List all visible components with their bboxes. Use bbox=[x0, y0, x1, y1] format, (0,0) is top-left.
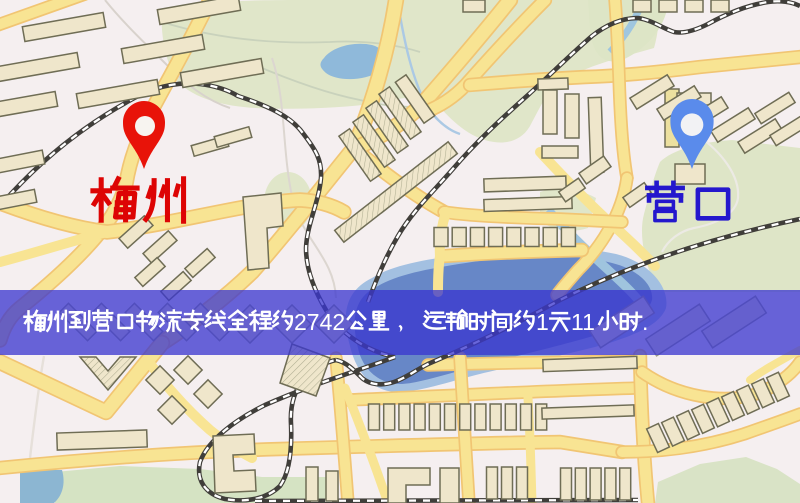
svg-text:11: 11 bbox=[571, 309, 595, 335]
svg-text:.: . bbox=[642, 309, 648, 335]
svg-text:1: 1 bbox=[536, 309, 549, 335]
svg-text:2742: 2742 bbox=[294, 309, 345, 335]
